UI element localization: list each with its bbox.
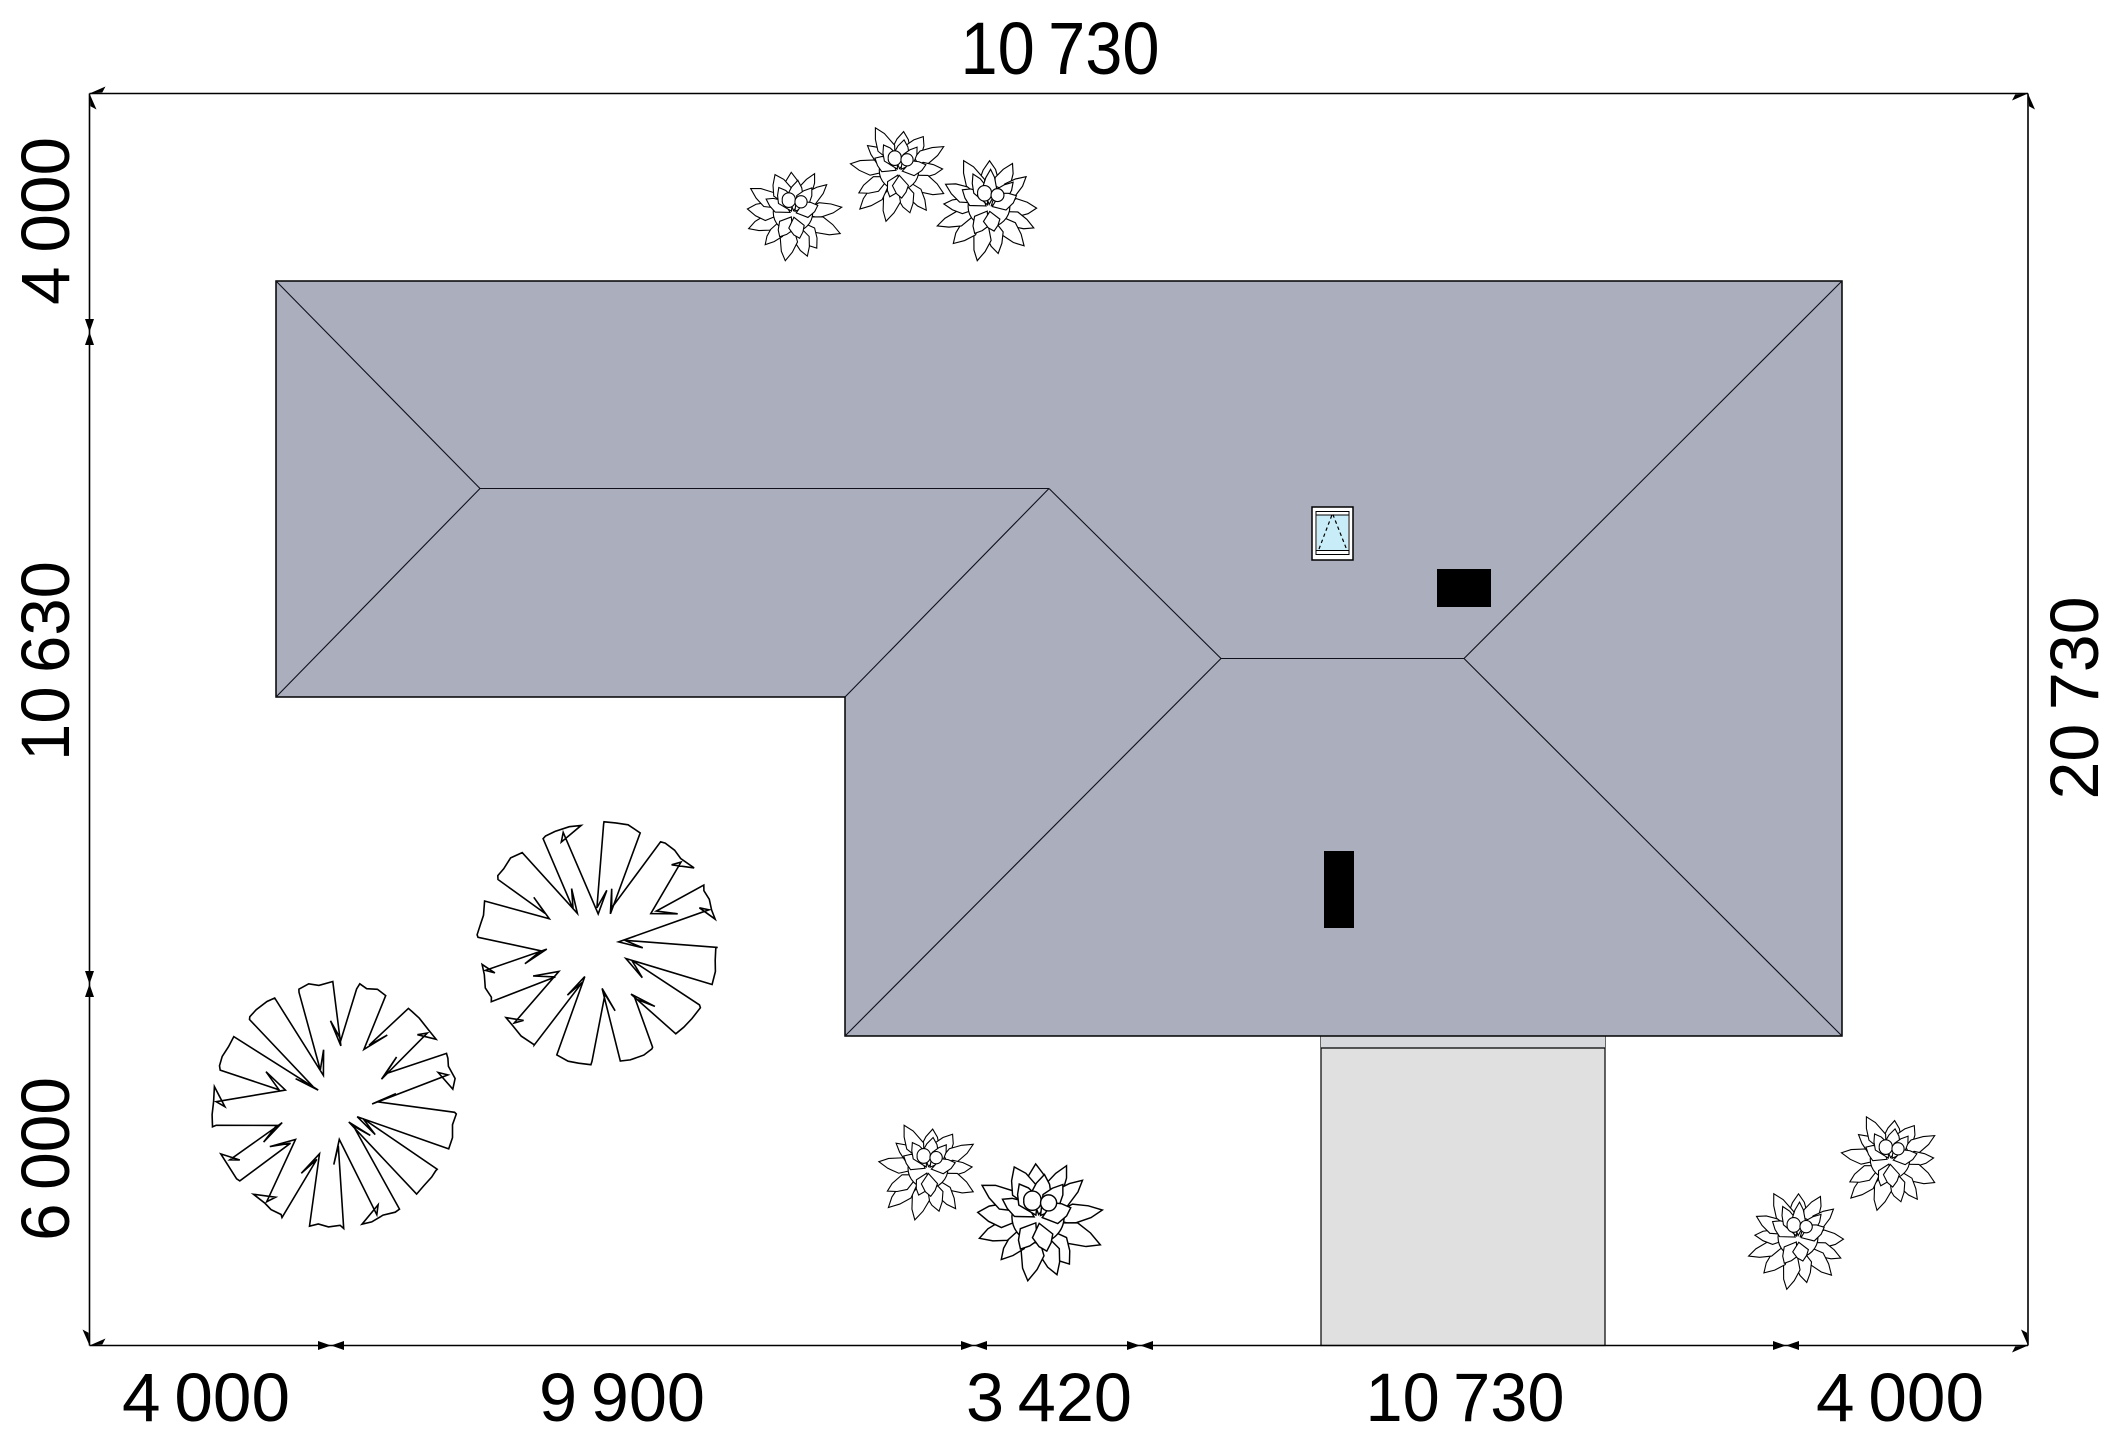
svg-text:3 420: 3 420 xyxy=(966,1359,1132,1435)
svg-text:10 630: 10 630 xyxy=(7,561,84,761)
svg-text:4 000: 4 000 xyxy=(122,1359,290,1435)
svg-text:4 000: 4 000 xyxy=(1816,1359,1984,1435)
svg-text:9 900: 9 900 xyxy=(539,1359,705,1435)
svg-text:20 730: 20 730 xyxy=(2036,597,2113,800)
svg-text:6 000: 6 000 xyxy=(7,1077,84,1241)
svg-text:4 000: 4 000 xyxy=(7,137,84,305)
svg-text:10 730: 10 730 xyxy=(961,7,1160,90)
svg-text:10 730: 10 730 xyxy=(1366,1359,1565,1435)
